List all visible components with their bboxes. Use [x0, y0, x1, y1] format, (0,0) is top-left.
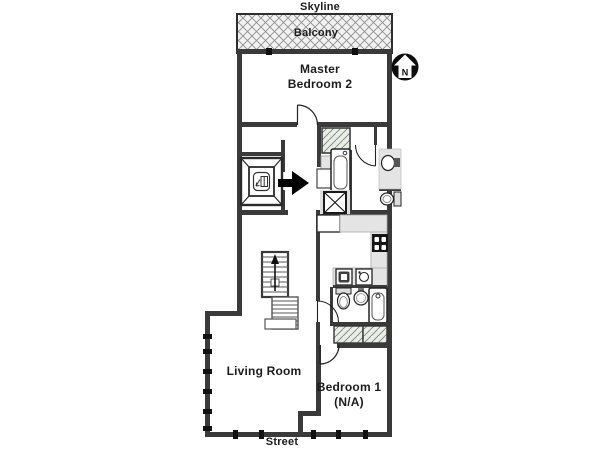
stairs-icon	[262, 252, 298, 329]
stairs-bottom-landing	[265, 319, 296, 329]
north-letter: N	[402, 68, 409, 78]
elevator-icon	[241, 158, 282, 205]
wall-notch-v	[298, 416, 303, 437]
sink-icon	[356, 269, 372, 285]
closet-hatch	[334, 326, 363, 343]
master-bedroom-label: Master Bedroom 2	[240, 62, 400, 92]
door-arc	[356, 145, 376, 166]
toilet-icon	[336, 288, 351, 309]
wall-bath-entry	[374, 127, 377, 145]
wall-hall	[316, 322, 320, 345]
shaft-x-icon	[320, 190, 350, 214]
street-label: Street	[232, 435, 332, 449]
wall-step	[205, 311, 242, 316]
wall-hall-left	[317, 127, 321, 167]
lower-bathroom	[318, 287, 388, 326]
balcony-label: Balcony	[246, 26, 386, 40]
bathtub-icon	[331, 149, 350, 193]
counter	[340, 215, 387, 232]
closet-hatch	[363, 326, 387, 343]
stove-icon	[372, 234, 388, 252]
window-marker	[203, 389, 212, 394]
balcony-door-tick	[352, 48, 358, 55]
skyline-label: Skyline	[250, 0, 390, 14]
window-marker	[336, 430, 341, 439]
window-marker	[363, 430, 368, 439]
door-arc	[298, 105, 318, 125]
wall-master-floor-right	[317, 122, 387, 127]
balcony-door-tick	[266, 48, 272, 55]
wall-notch-h	[298, 411, 321, 416]
wall-balcony-bottom	[237, 49, 392, 54]
door-arc	[318, 301, 339, 322]
bedroom1-line2: (N/A)	[300, 395, 398, 410]
window-marker	[203, 334, 212, 339]
bathtub-icon	[369, 288, 387, 323]
mid-bathroom	[317, 145, 401, 214]
bedroom1-closets	[334, 326, 391, 348]
master-bedroom-walls	[239, 105, 387, 127]
wall-master-floor-left	[239, 122, 297, 127]
wall-bedroom-top	[337, 343, 391, 348]
kitchen-closet	[317, 215, 340, 232]
master-bedroom-line2: Bedroom 2	[240, 77, 400, 92]
master-bedroom-line1: Master	[240, 62, 400, 77]
floorplan-canvas: N Skyline Balcony Master Bedroom 2 Livin…	[0, 0, 600, 450]
sink-icon	[354, 288, 368, 305]
bedroom1-label: Bedroom 1 (N/A)	[300, 380, 398, 410]
wall-mid-bottom-left	[239, 210, 288, 215]
living-room-label: Living Room	[204, 364, 324, 379]
window-marker	[203, 409, 212, 414]
toilet-icon	[381, 192, 402, 206]
bedroom1-line1: Bedroom 1	[300, 380, 398, 395]
door-arc	[320, 345, 339, 364]
window-marker	[203, 349, 212, 354]
wall-lobby-top	[239, 152, 283, 156]
window-marker	[203, 426, 212, 431]
kitchen-sink-icon	[336, 269, 352, 285]
